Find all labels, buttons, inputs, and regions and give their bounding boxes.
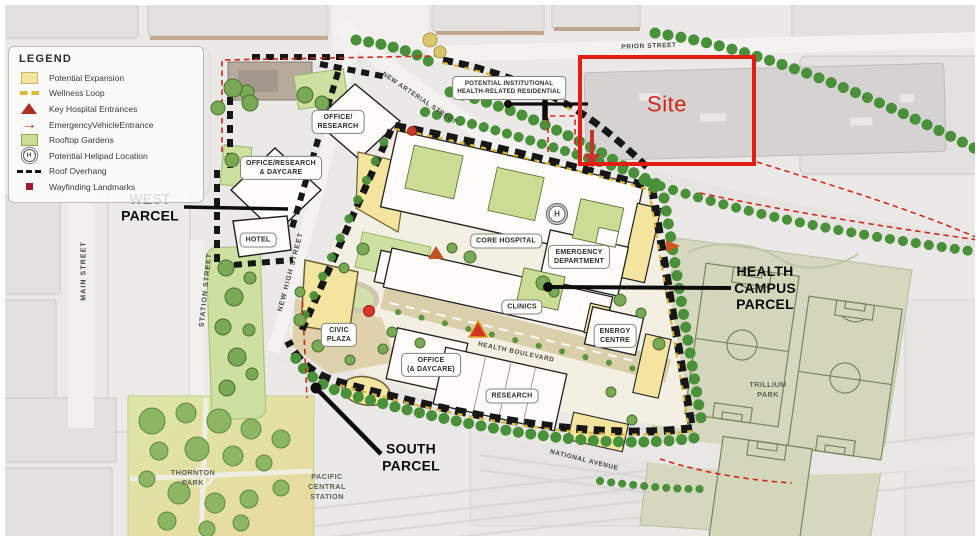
- main-street-label: MAIN STREET: [79, 241, 88, 301]
- thornton-park-label: THORNTON PARK: [171, 468, 215, 488]
- helipad-marker: H: [549, 206, 566, 223]
- legend-panel: LEGEND Potential Expansion Wellness Loop…: [8, 46, 204, 203]
- pacific-central-station-label: PACIFIC CENTRAL STATION: [308, 472, 346, 502]
- office-research-daycare-label: OFFICE/RESEARCH & DAYCARE: [240, 156, 322, 180]
- hospital-entrance-icon: [21, 103, 37, 114]
- legend-item-label: Roof Overhang: [49, 166, 107, 176]
- potential-institutional-label: POTENTIAL INSTITUTIONAL HEALTH-RELATED R…: [452, 76, 566, 100]
- legend-item-label: EmergencyVehicleEntrance: [49, 120, 153, 130]
- energy-centre-label: ENERGY CENTRE: [594, 324, 637, 348]
- legend-title: LEGEND: [19, 53, 195, 65]
- office-research-label: OFFICE/ RESEARCH: [312, 110, 365, 134]
- legend-item: Wayfinding Landmarks: [17, 179, 195, 195]
- hotel-label: HOTEL: [240, 232, 277, 247]
- rooftop-gardens-icon: [21, 134, 38, 146]
- research-label: RESEARCH: [486, 388, 539, 403]
- legend-item-label: Wellness Loop: [49, 88, 105, 98]
- health-campus-parcel-label: HEALTH CAMPUS PARCEL: [734, 263, 796, 313]
- site-plan-map: LEGEND Potential Expansion Wellness Loop…: [0, 0, 980, 541]
- legend-item-label: Key Hospital Entrances: [49, 104, 137, 114]
- legend-item: Key Hospital Entrances: [17, 101, 195, 117]
- office-daycare-label: OFFICE (& DAYCARE): [401, 353, 461, 377]
- emergency-vehicle-arrow-icon: →: [17, 117, 41, 133]
- clinics-label: CLINICS: [501, 299, 542, 314]
- wellness-loop-icon: [20, 91, 39, 95]
- legend-item-label: Rooftop Gardens: [49, 135, 114, 145]
- station-green-strip: [206, 246, 266, 420]
- core-hospital-label: CORE HOSPITAL: [470, 233, 542, 248]
- legend-item: → EmergencyVehicleEntrance: [17, 117, 195, 133]
- legend-item: Potential Expansion: [17, 70, 195, 86]
- legend-item: Rooftop Gardens: [17, 132, 195, 148]
- civic-plaza-label: CIVIC PLAZA: [321, 323, 357, 347]
- trillium-park-label: TRILLIUM PARK: [749, 380, 786, 400]
- emergency-department-label: EMERGENCY DEPARTMENT: [548, 245, 610, 269]
- south-parcel-label: SOUTH PARCEL: [382, 440, 440, 473]
- potential-expansion-icon: [21, 72, 38, 84]
- site-label: Site: [647, 91, 687, 120]
- wayfinding-landmark-icon: [26, 183, 33, 190]
- legend-item-label: Wayfinding Landmarks: [49, 182, 135, 192]
- legend-item: Wellness Loop: [17, 86, 195, 102]
- legend-item-label: Potential Helipad Location: [49, 151, 148, 161]
- legend-item: H Potential Helipad Location: [17, 148, 195, 164]
- legend-item-label: Potential Expansion: [49, 73, 124, 83]
- wayfinding-landmark-dot: [364, 306, 375, 317]
- legend-item: Roof Overhang: [17, 164, 195, 180]
- helipad-icon: H: [23, 149, 36, 162]
- roof-overhang-icon: [17, 170, 41, 173]
- wayfinding-landmark-dot: [408, 127, 417, 136]
